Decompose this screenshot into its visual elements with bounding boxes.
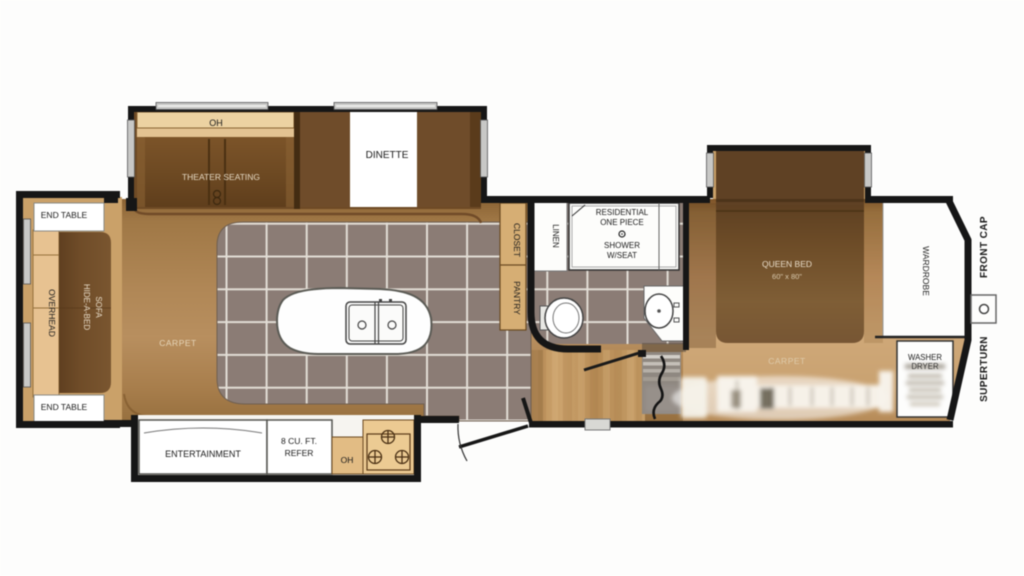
svg-text:OH: OH bbox=[209, 118, 223, 128]
svg-text:CLOSET: CLOSET bbox=[512, 223, 522, 257]
svg-text:W/SEAT: W/SEAT bbox=[607, 251, 637, 260]
svg-text:QUEEN BED: QUEEN BED bbox=[762, 259, 812, 269]
svg-text:END TABLE: END TABLE bbox=[41, 210, 88, 220]
svg-text:OH: OH bbox=[341, 455, 354, 465]
svg-text:THEATER SEATING: THEATER SEATING bbox=[182, 172, 260, 182]
svg-text:WASHER: WASHER bbox=[908, 353, 942, 362]
svg-text:PANTRY: PANTRY bbox=[512, 281, 522, 315]
svg-text:HIDE-A-BED: HIDE-A-BED bbox=[82, 284, 91, 330]
svg-text:ONE PIECE: ONE PIECE bbox=[600, 218, 644, 227]
svg-text:DINETTE: DINETTE bbox=[366, 150, 409, 161]
svg-text:CARPET: CARPET bbox=[768, 356, 805, 366]
svg-text:60" x 80": 60" x 80" bbox=[772, 272, 802, 281]
svg-text:ENTERTAINMENT: ENTERTAINMENT bbox=[165, 449, 241, 459]
svg-text:DRYER: DRYER bbox=[911, 362, 939, 371]
svg-text:SHOWER: SHOWER bbox=[604, 241, 640, 250]
svg-text:RESIDENTIAL: RESIDENTIAL bbox=[596, 208, 649, 217]
svg-text:REFER: REFER bbox=[285, 448, 314, 458]
svg-text:FRONT CAP: FRONT CAP bbox=[979, 216, 990, 278]
svg-text:CARPET: CARPET bbox=[159, 338, 196, 348]
svg-text:SUPERTURN: SUPERTURN bbox=[979, 336, 990, 402]
svg-text:SOFA: SOFA bbox=[94, 296, 103, 318]
svg-text:8 CU. FT.: 8 CU. FT. bbox=[281, 436, 317, 446]
svg-text:OVERHEAD: OVERHEAD bbox=[47, 289, 57, 337]
svg-text:END TABLE: END TABLE bbox=[41, 402, 88, 412]
svg-text:WARDROBE: WARDROBE bbox=[921, 246, 931, 296]
svg-text:LINEN: LINEN bbox=[551, 224, 560, 248]
